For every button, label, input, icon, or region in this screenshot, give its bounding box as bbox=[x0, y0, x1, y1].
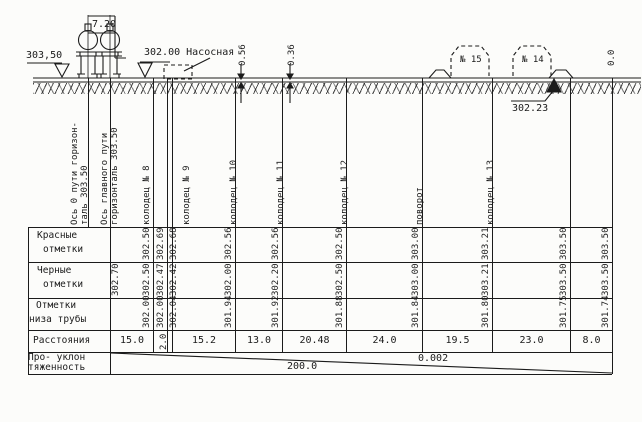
red-mark-value-ordinate-18: 303.50 bbox=[559, 227, 569, 260]
black-mark-value-well-8: 302.50 bbox=[142, 263, 152, 296]
slope-value: 0.002 bbox=[418, 354, 448, 364]
ordinate-label-turn-point: поворот bbox=[415, 187, 425, 225]
pump-station-outline bbox=[164, 65, 192, 79]
building-14-label: № 14 bbox=[522, 56, 544, 65]
distance-value-1: 2.0 bbox=[159, 334, 169, 350]
row-label-pipe-invert-1: Отметки bbox=[36, 301, 76, 311]
red-mark-value-well-12: 302.50 bbox=[335, 227, 345, 260]
distance-value-8: 8.0 bbox=[571, 332, 612, 350]
row-label-pipe-invert-2: низа трубы bbox=[29, 315, 86, 325]
pump-station-label: 302.00 Насосная bbox=[144, 48, 234, 58]
invert-mark-value-pump-connection: 302.00 bbox=[156, 295, 166, 328]
red-mark-value-well-13: 303.21 bbox=[481, 227, 491, 260]
drawing-linework bbox=[0, 0, 642, 422]
table-row-line-5 bbox=[28, 374, 612, 375]
red-mark-value-well-9: 302.68 bbox=[169, 227, 179, 260]
invert-mark-value-ordinate-18: 301.75 bbox=[559, 295, 569, 328]
ground-line bbox=[33, 78, 641, 82]
building-15-label: № 15 bbox=[460, 56, 482, 65]
black-mark-value-well-12: 302.50 bbox=[335, 263, 345, 296]
row-label-black-marks-2: отметки bbox=[43, 280, 83, 290]
black-mark-value-well-11: 302.20 bbox=[271, 263, 281, 296]
row-label-length-slope-2: тяженность bbox=[28, 363, 85, 373]
black-mark-value-profile-end: 303.50 bbox=[601, 263, 611, 296]
row-label-red-marks-1: Красные bbox=[37, 231, 77, 241]
depth-label-1: 0.56 bbox=[238, 44, 248, 66]
red-mark-value-pump-connection: 302.69 bbox=[156, 227, 166, 260]
ordinate-line-profile-end bbox=[612, 78, 613, 374]
black-mark-value-axis-main-track: 302.70 bbox=[111, 263, 121, 296]
invert-mark-value-well-8: 302.00 bbox=[142, 295, 152, 328]
benchmark-label: 302.23 bbox=[512, 104, 548, 114]
end-distance-label: 0.0 bbox=[607, 50, 617, 66]
embankment-mound-1 bbox=[429, 70, 451, 78]
red-mark-value-profile-end: 303.50 bbox=[601, 227, 611, 260]
table-row-line-1 bbox=[28, 262, 612, 263]
red-mark-value-well-8: 302.50 bbox=[142, 227, 152, 260]
black-mark-value-pump-connection: 302.47 bbox=[156, 263, 166, 296]
length-value: 200.0 bbox=[287, 362, 317, 372]
invert-mark-value-turn-point: 301.84 bbox=[411, 295, 421, 328]
ordinate-label-axis-main-track: Ось главного пути горизонталь 303.50 bbox=[100, 127, 120, 225]
depth-label-2: 0.36 bbox=[287, 44, 297, 66]
slope-diagonal-line bbox=[110, 353, 612, 373]
track-dimension-label: 7.20 bbox=[92, 20, 116, 30]
invert-mark-value-well-13: 301.80 bbox=[481, 295, 491, 328]
invert-mark-value-well-10: 301.94 bbox=[224, 295, 234, 328]
left-elevation-label: 303,50 bbox=[26, 51, 62, 61]
invert-mark-value-well-11: 301.92 bbox=[271, 295, 281, 328]
table-left-border bbox=[28, 227, 29, 374]
distance-value-0: 15.0 bbox=[111, 332, 153, 350]
table-row-line-2 bbox=[28, 298, 612, 299]
black-mark-value-turn-point: 303.00 bbox=[411, 263, 421, 296]
black-mark-value-ordinate-18: 303.50 bbox=[559, 263, 569, 296]
table-row-line-4 bbox=[28, 352, 612, 353]
table-row-line-3 bbox=[28, 330, 612, 331]
red-mark-value-turn-point: 303.00 bbox=[411, 227, 421, 260]
embankment-mound-2 bbox=[549, 70, 573, 78]
ordinate-label-well-11: колодец № 11 bbox=[276, 160, 286, 225]
ordinate-line-well-8 bbox=[153, 78, 154, 352]
distance-value-6: 19.5 bbox=[423, 332, 492, 350]
red-mark-value-well-11: 302.56 bbox=[271, 227, 281, 260]
ordinate-label-well-13: колодец № 13 bbox=[486, 160, 496, 225]
black-mark-value-well-10: 302.00 bbox=[224, 263, 234, 296]
distance-value-7: 23.0 bbox=[493, 332, 570, 350]
ordinate-label-well-10: колодец № 10 bbox=[229, 160, 239, 225]
ordinate-label-well-8: колодец № 8 bbox=[142, 165, 152, 225]
profile-drawing-canvas: 303,50 7.20 302.00 Насосная 0.56 0.36 № … bbox=[0, 0, 642, 422]
black-mark-value-well-13: 303.21 bbox=[481, 263, 491, 296]
distance-value-2: 15.2 bbox=[173, 332, 235, 350]
ordinate-label-well-12: колодец № 12 bbox=[340, 160, 350, 225]
black-mark-value-well-9: 302.42 bbox=[169, 263, 179, 296]
table-row-line-0 bbox=[28, 227, 612, 228]
pump-elevation-marker-icon bbox=[138, 62, 170, 77]
row-label-distances: Расстояния bbox=[33, 336, 90, 346]
ordinate-label-axis-track-0: Ось 0 пути горизон- таль 303.50 bbox=[70, 122, 90, 225]
red-mark-value-well-10: 302.56 bbox=[224, 227, 234, 260]
distance-value-3: 13.0 bbox=[236, 332, 282, 350]
left-elevation-marker-icon bbox=[27, 63, 69, 77]
ordinate-label-well-9: колодец № 9 bbox=[182, 165, 192, 225]
ordinate-line-pump-connection bbox=[167, 78, 168, 352]
row-label-red-marks-2: отметки bbox=[43, 245, 83, 255]
row-label-black-marks-1: Черные bbox=[37, 266, 71, 276]
invert-mark-value-profile-end: 301.74 bbox=[601, 295, 611, 328]
invert-mark-value-well-9: 302.04 bbox=[169, 295, 179, 328]
distance-value-5: 24.0 bbox=[347, 332, 422, 350]
invert-mark-value-well-12: 301.88 bbox=[335, 295, 345, 328]
ground-hatching bbox=[33, 83, 641, 94]
ordinate-line-ordinate-18 bbox=[570, 78, 571, 352]
distance-value-4: 20.48 bbox=[283, 332, 346, 350]
